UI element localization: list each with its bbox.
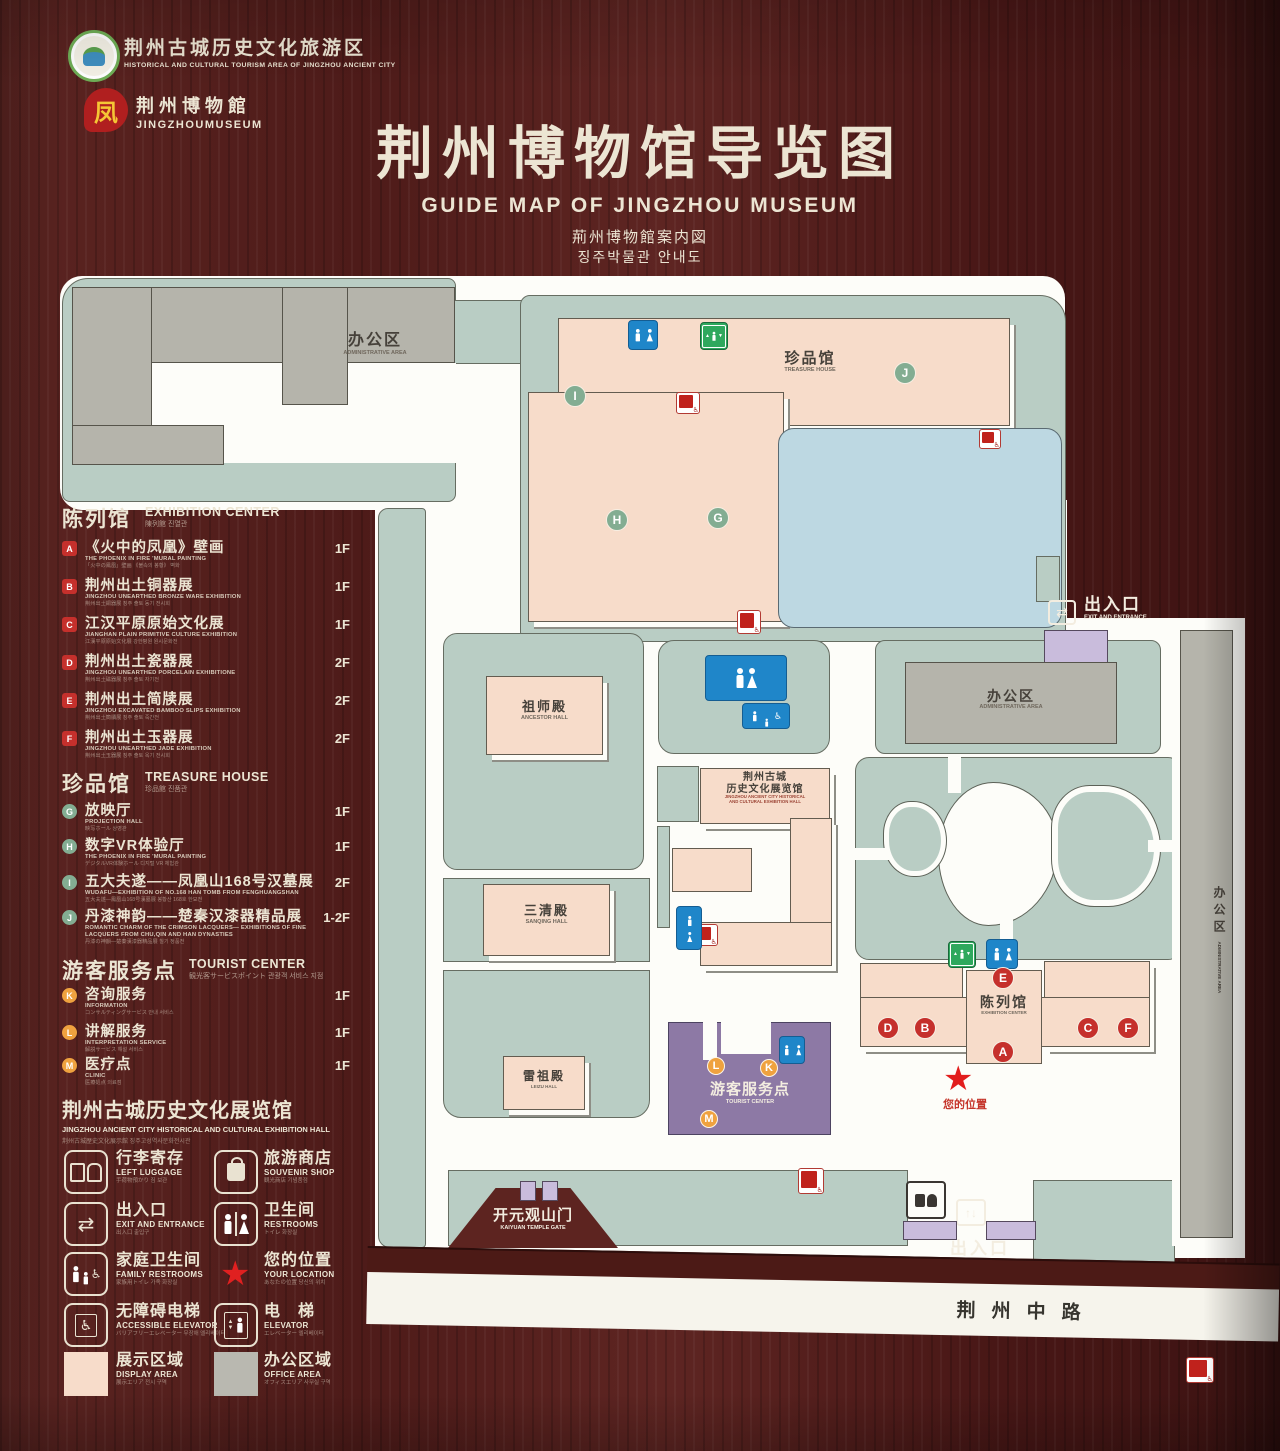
tourist-center-slot xyxy=(721,1022,771,1054)
elevator-icon: ▲▼ xyxy=(700,322,728,350)
accessible-elevator-icon xyxy=(979,429,1001,449)
tourism-area-logo-icon xyxy=(68,30,120,82)
ne-entrance-block xyxy=(1044,630,1108,665)
legend-icon-exit: 出入口EXIT AND ENTRANCE出入口 출입구 xyxy=(116,1202,205,1238)
tourism-area-logo: 荆州古城历史文化旅游区 HISTORICAL AND CULTURAL TOUR… xyxy=(124,33,396,69)
legend-icon-souvenir-shop: 旅游商店SOUVENIR SHOP観光商店 기념품점 xyxy=(264,1150,335,1186)
gate-pier xyxy=(520,1181,536,1201)
map-marker-F: F xyxy=(1117,1017,1139,1039)
admin-nw-label: 办公区 ADMINISTRATIVE AREA xyxy=(300,332,450,357)
male-icon xyxy=(634,328,640,341)
office-area-swatch xyxy=(214,1352,258,1396)
leizu-hall-label: 雷祖殿 LEIZU HALL xyxy=(503,1070,585,1089)
restrooms-icon xyxy=(214,1202,258,1246)
tourist-center-label: 游客服务点 TOURIST CENTER xyxy=(685,1082,815,1105)
male-icon xyxy=(736,668,745,689)
road-label: 荆州中路 xyxy=(956,1295,1097,1325)
your-location-star-icon: ★ xyxy=(220,1254,250,1295)
left-luggage-icon xyxy=(906,1181,946,1219)
museum-logo-cn: 荆州博物館 xyxy=(136,92,263,118)
legend-item-K: K 咨询服务INFORMATIONコンサルティングサービス 안내 서비스 1F xyxy=(62,988,350,1016)
person-icon xyxy=(713,331,716,340)
east-strip-label-en: ADMINISTRATIVE AREA xyxy=(1217,942,1222,994)
east-admin-label: 办公区 ADMINISTRATIVE AREA xyxy=(936,688,1086,710)
accessible-elevator-icon xyxy=(798,1168,824,1194)
accessible-elevator-icon xyxy=(737,610,761,634)
map-marker-D: D xyxy=(877,1017,899,1039)
gate-pier xyxy=(542,1181,558,1201)
legend-item-C: C 江汉平原原始文化展JIANGHAN PLAIN PRIMITIVE CULT… xyxy=(62,617,350,645)
museum-logo-en: JINGZHOUMUSEUM xyxy=(136,119,263,131)
elevator-icon: ▲▼ xyxy=(948,941,976,968)
legend-hall-note: 荆州古城历史文化展览馆 JINGZHOU ANCIENT CITY HISTOR… xyxy=(62,1094,372,1145)
west-green-strip xyxy=(378,508,426,1248)
map-marker-B: B xyxy=(914,1017,936,1039)
east-strip-label-cn: 办公区 xyxy=(1212,886,1226,937)
map-marker-M: M xyxy=(700,1110,718,1128)
hall-green-stub-b xyxy=(657,826,670,928)
ne-green-stub xyxy=(1036,556,1060,602)
legend-icon-office-area: 办公区域OFFICE AREAオフィスエリア 사무실 구역 xyxy=(264,1352,332,1388)
page-title-ko: 징주박물관 안내도 xyxy=(250,247,1030,267)
female-icon xyxy=(646,328,652,341)
accessible-elevator-icon: ♿ xyxy=(64,1303,108,1347)
family-restroom-icon: ♿ xyxy=(742,703,790,729)
exhibition-hall-midroom xyxy=(672,848,752,892)
treasure-pond xyxy=(778,428,1062,628)
map-marker-A: A xyxy=(992,1041,1014,1063)
east-strip-label: 办公区 ADMINISTRATIVE AREA xyxy=(1188,860,1228,1020)
map-marker-C: C xyxy=(1077,1017,1099,1039)
restroom-icon xyxy=(676,906,702,950)
left-luggage-icon xyxy=(64,1150,108,1194)
s-entrance-block xyxy=(986,1221,1036,1240)
legend-icon-left-luggage: 行李寄存LEFT LUGGAGE手荷物預かり 짐 보관 xyxy=(116,1150,184,1186)
legend-item-E: E 荆州出土简牍展JINGZHOU EXCAVATED BAMBOO SLIPS… xyxy=(62,693,350,721)
exit-icon: ↑↓ xyxy=(956,1199,986,1226)
tourism-logo-en: HISTORICAL AND CULTURAL TOURISM AREA OF … xyxy=(124,62,396,69)
restroom-icon xyxy=(986,939,1018,969)
legend-icon-display-area: 展示区域DISPLAY AREA展示エリア 전시 구역 xyxy=(116,1352,184,1388)
museum-logo: 荆州博物館 JINGZHOUMUSEUM xyxy=(136,92,263,131)
ancestor-hall-label: 祖师殿 ANCESTOR HALL xyxy=(486,700,603,721)
legend-item-I: I 五大夫遂——凤凰山168号汉墓展WUDAFU—EXHIBITION OF N… xyxy=(62,875,350,903)
your-location-label: 您的位置 xyxy=(930,1096,1000,1112)
map-marker-H: H xyxy=(606,509,628,531)
guide-map-poster: 荆州古城历史文化旅游区 HISTORICAL AND CULTURAL TOUR… xyxy=(0,0,1280,1451)
admin-inner-court2 xyxy=(350,363,456,463)
legend-item-A: A 《火中的凤凰》壁画THE PHOENIX IN FIRE 'MURAL PA… xyxy=(62,541,350,569)
map-marker-I: I xyxy=(564,385,586,407)
exhibition-hall-bottom xyxy=(700,922,832,966)
female-icon xyxy=(748,668,757,689)
legend-icon-your-location: 您的位置YOUR LOCATIONあなたの位置 당신의 위치 xyxy=(264,1252,334,1288)
legend-item-G: G 放映厅PROJECTION HALL映写ホール 상영관 1F xyxy=(62,804,350,832)
ne-exit-label: 出入口 EXIT AND ENTRANCE xyxy=(1084,596,1147,621)
map-marker-G: G xyxy=(707,507,729,529)
legend-item-H: H 数字VR体验厅THE PHOENIX IN FIRE 'MURAL PAIN… xyxy=(62,839,350,867)
your-location-star-icon: ★ xyxy=(943,1062,973,1096)
family-restrooms-icon: ♿ xyxy=(64,1252,108,1296)
garden-path-w xyxy=(855,848,889,860)
legend-icon-family-restrooms: 家庭卫生间FAMILY RESTROOMS家族用トイレ 가족 화장실 xyxy=(116,1252,203,1288)
legend-section-exhibition-header: 陈列馆 EXHIBITION CENTER陳列館 진열관 xyxy=(62,503,280,533)
garden-west-island xyxy=(884,802,946,876)
map-marker-K: K xyxy=(760,1059,778,1077)
road-band: 荆州中路 xyxy=(366,1232,1280,1359)
restroom-icon xyxy=(628,320,658,350)
legend-icon-elevator: 电 梯ELEVATORエレベーター 엘리베이터 xyxy=(264,1303,324,1339)
map-marker-J: J xyxy=(894,362,916,384)
legend-item-B: B 荆州出土铜器展JINGZHOU UNEARTHED BRONZE WARE … xyxy=(62,579,350,607)
restroom-icon xyxy=(779,1036,805,1064)
s-entrance-block xyxy=(903,1221,957,1240)
legend-item-L: L 讲解服务INTERPRETATION SERVICE解説サービス 해설 서비… xyxy=(62,1025,350,1053)
display-area-swatch xyxy=(64,1352,108,1396)
page-title-ja: 荊州博物館案内図 xyxy=(250,226,1030,247)
garden-path-n xyxy=(948,757,961,793)
gate-label: 开元观山门 KAIYUAN TEMPLE GATE xyxy=(463,1208,603,1231)
exhibition-hall-label: 荆州古城 历史文化展览馆 JINGZHOU ANCIENT CITY HISTO… xyxy=(700,772,830,805)
exhibition-center-label: 陈列馆 EXHIBITION CENTER xyxy=(966,994,1042,1015)
exit-icon: ⇄ xyxy=(1048,600,1076,625)
tourism-logo-cn: 荆州古城历史文化旅游区 xyxy=(124,33,396,60)
hall-green-stub-a xyxy=(657,766,699,822)
legend-section-tourist-header: 游客服务点 TOURIST CENTER観光客サービスポイント 관광객 서비스 … xyxy=(62,955,323,985)
legend-icon-accessible-elevator: 无障碍电梯ACCESSIBLE ELEVATORバリアフリーエレベーター 무장애… xyxy=(116,1303,226,1339)
treasure-label: 珍品馆 TREASURE HOUSE xyxy=(760,350,860,374)
sanqing-hall-label: 三清殿 SANQING HALL xyxy=(483,904,610,925)
admin-building-bottom xyxy=(72,425,224,465)
legend-section-treasure-header: 珍品馆 TREASURE HOUSE珍品館 진품관 xyxy=(62,768,269,798)
exit-entrance-icon: ⇄ xyxy=(64,1202,108,1246)
legend-icon-restrooms: 卫生间RESTROOMSトイレ 화장실 xyxy=(264,1202,318,1238)
museum-logo-icon: 凤 xyxy=(84,88,128,132)
tourist-center-slot xyxy=(703,1022,717,1060)
legend-item-J: J 丹漆神韵——楚秦汉漆器精品展ROMANTIC CHARM OF THE CR… xyxy=(62,910,350,945)
elevator-icon: ▲▼ xyxy=(214,1303,258,1347)
map-marker-L: L xyxy=(707,1057,725,1075)
restroom-icon xyxy=(705,655,787,701)
legend-item-F: F 荆州出土玉器展JINGZHOU UNEARTHED JADE EXHIBIT… xyxy=(62,731,350,759)
map-marker-E: E xyxy=(992,967,1014,989)
treasure-building-main xyxy=(528,392,784,622)
page-title-en: GUIDE MAP OF JINGZHOU MUSEUM xyxy=(250,194,1030,218)
legend-item-D: D 荆州出土瓷器展JINGZHOU UNEARTHED PORCELAIN EX… xyxy=(62,655,350,683)
accessible-elevator-icon xyxy=(1186,1357,1214,1383)
souvenir-shop-icon xyxy=(214,1150,258,1194)
accessible-elevator-icon xyxy=(676,392,700,414)
legend-item-M: M 医疗点CLINIC医療処点 의료점 1F xyxy=(62,1058,350,1086)
garden-east-island xyxy=(1052,786,1160,906)
page-title: 荆州博物馆导览图 xyxy=(250,108,1030,190)
